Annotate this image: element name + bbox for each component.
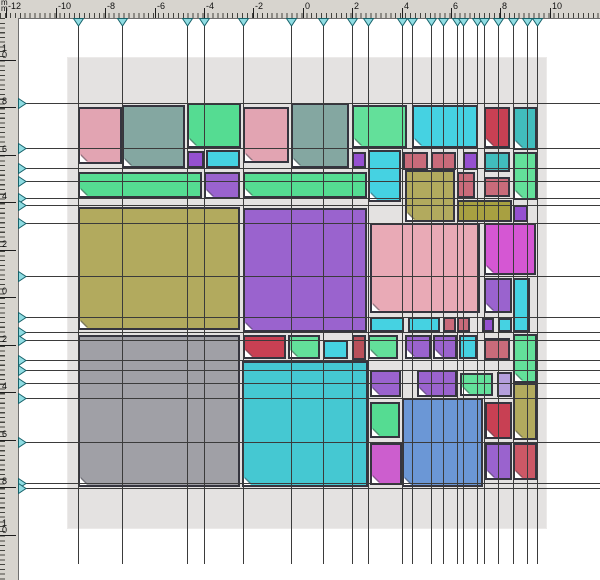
canvas-shape[interactable]: [187, 103, 241, 148]
ruler-tick: [0, 107, 16, 108]
canvas-shape[interactable]: [243, 208, 367, 332]
ruler-vertical[interactable]: 1086420246810: [0, 18, 19, 580]
guide-marker-icon[interactable]: [18, 437, 27, 448]
guide-marker-icon[interactable]: [18, 98, 27, 109]
canvas-shape[interactable]: [352, 152, 366, 168]
canvas-shape[interactable]: [498, 318, 512, 332]
canvas-shape[interactable]: [352, 105, 407, 148]
guide-marker-icon[interactable]: [18, 163, 27, 174]
ruler-tick-label: 4: [404, 1, 409, 11]
ruler-tick: [56, 8, 57, 18]
guide-line-horizontal[interactable]: [26, 168, 600, 169]
canvas-shape[interactable]: [484, 338, 510, 360]
canvas-shape[interactable]: [443, 317, 456, 332]
ruler-tick-label: -4: [206, 1, 214, 11]
guide-marker-icon[interactable]: [18, 218, 27, 229]
guide-marker-icon[interactable]: [199, 18, 210, 27]
canvas-shape[interactable]: [243, 335, 286, 359]
ruler-tick: [402, 8, 403, 18]
ruler-tick: [0, 155, 16, 156]
guide-line-horizontal[interactable]: [26, 332, 600, 333]
guide-marker-icon[interactable]: [18, 271, 27, 282]
canvas-shape[interactable]: [78, 207, 240, 330]
ruler-tick: [204, 8, 205, 18]
ruler-tick-label: -8: [107, 1, 115, 11]
canvas-shape[interactable]: [457, 172, 475, 198]
guide-marker-icon[interactable]: [117, 18, 128, 27]
canvas-shape[interactable]: [243, 172, 367, 198]
guide-line-horizontal[interactable]: [26, 103, 600, 104]
canvas-shape[interactable]: [368, 335, 398, 359]
ruler-tick: [0, 202, 16, 203]
guide-line-horizontal[interactable]: [26, 383, 600, 384]
ruler-tick: [0, 60, 16, 61]
ruler-tick: [0, 440, 16, 441]
guide-marker-icon[interactable]: [18, 365, 27, 376]
guide-marker-icon[interactable]: [438, 18, 449, 27]
ruler-unit-label: mm: [1, 0, 8, 12]
ruler-tick-label: 6: [453, 1, 458, 11]
ruler-tick: [0, 535, 16, 536]
guide-line-horizontal[interactable]: [26, 488, 600, 489]
guide-marker-icon[interactable]: [18, 143, 27, 154]
canvas-shape[interactable]: [513, 205, 528, 222]
guide-marker-icon[interactable]: [73, 18, 84, 27]
canvas-shape[interactable]: [484, 177, 510, 197]
ruler-tick-label: 8: [2, 98, 9, 105]
guide-line-horizontal[interactable]: [26, 276, 600, 277]
canvas-shape[interactable]: [243, 107, 289, 163]
guide-line-horizontal[interactable]: [26, 483, 600, 484]
ruler-tick-label: 2: [2, 241, 9, 248]
ruler-tick: [155, 8, 156, 18]
canvas-shape[interactable]: [206, 150, 240, 168]
canvas-shape[interactable]: [484, 152, 510, 172]
canvas-shape[interactable]: [433, 335, 457, 359]
guide-line-horizontal[interactable]: [26, 370, 600, 371]
guide-marker-icon[interactable]: [18, 393, 27, 404]
canvas-shape[interactable]: [484, 107, 510, 148]
ruler-tick-label: -12: [8, 1, 21, 11]
guide-marker-icon[interactable]: [407, 18, 418, 27]
ruler-tick: [0, 487, 16, 488]
ruler-tick-label: 2: [354, 1, 359, 11]
guide-line-horizontal[interactable]: [26, 398, 600, 399]
canvas-shape[interactable]: [370, 317, 404, 332]
guide-marker-icon[interactable]: [182, 18, 193, 27]
ruler-tick: [0, 250, 16, 251]
canvas-shape[interactable]: [497, 372, 512, 397]
canvas-shape[interactable]: [242, 361, 368, 487]
canvas-shape[interactable]: [459, 335, 477, 359]
ruler-tick-label: 10: [552, 1, 562, 11]
ruler-tick: [352, 8, 353, 18]
ruler-tick-label: 0: [2, 288, 9, 295]
guide-line-horizontal[interactable]: [26, 223, 600, 224]
drawing-canvas[interactable]: [0, 0, 600, 580]
guide-marker-icon[interactable]: [508, 18, 519, 27]
canvas-shape[interactable]: [513, 152, 537, 200]
canvas-shape[interactable]: [122, 105, 185, 168]
ruler-tick-label: 8: [2, 478, 9, 485]
guide-marker-icon[interactable]: [18, 176, 27, 187]
ruler-tick: [451, 8, 452, 18]
guide-marker-icon[interactable]: [363, 18, 374, 27]
guide-marker-icon[interactable]: [532, 18, 543, 27]
guide-marker-icon[interactable]: [18, 378, 27, 389]
canvas-shape[interactable]: [187, 151, 204, 168]
canvas-shape[interactable]: [288, 335, 320, 359]
canvas-shape[interactable]: [513, 334, 537, 383]
guide-line-horizontal[interactable]: [26, 205, 600, 206]
canvas-shape[interactable]: [513, 107, 537, 150]
canvas-shape[interactable]: [78, 172, 202, 198]
canvas-shape[interactable]: [291, 103, 349, 168]
guide-marker-icon[interactable]: [318, 18, 329, 27]
ruler-tick-label: 4: [2, 193, 9, 200]
guide-marker-icon[interactable]: [493, 18, 504, 27]
guide-marker-icon[interactable]: [18, 335, 27, 346]
guide-marker-icon[interactable]: [347, 18, 358, 27]
canvas-shape[interactable]: [370, 443, 402, 485]
canvas-shape[interactable]: [513, 443, 537, 480]
ruler-tick-label: -2: [255, 1, 263, 11]
guide-line-horizontal[interactable]: [26, 442, 600, 443]
guide-line-horizontal[interactable]: [26, 198, 600, 199]
guide-line-horizontal[interactable]: [26, 317, 600, 318]
ruler-tick: [0, 392, 16, 393]
ruler-tick-label: 8: [502, 1, 507, 11]
ruler-tick-label: 6: [2, 146, 9, 153]
ruler-horizontal[interactable]: -12-10-8-6-4-20246810: [0, 0, 600, 19]
ruler-tick: [550, 8, 551, 18]
ruler-tick-label: 0: [305, 1, 310, 11]
canvas-shape[interactable]: [513, 383, 537, 440]
canvas-shape[interactable]: [78, 335, 240, 487]
ruler-tick: [105, 8, 106, 18]
ruler-tick: [500, 8, 501, 18]
drawing-app-window: -12-10-8-6-4-20246810 1086420246810 mm: [0, 0, 600, 580]
canvas-shape[interactable]: [352, 335, 366, 360]
canvas-shape[interactable]: [412, 105, 478, 148]
canvas-shape[interactable]: [484, 223, 536, 275]
canvas-shape[interactable]: [204, 172, 240, 199]
canvas-shape[interactable]: [405, 335, 431, 359]
guide-line-horizontal[interactable]: [26, 148, 600, 149]
canvas-shape[interactable]: [368, 150, 401, 202]
guide-marker-icon[interactable]: [18, 483, 27, 494]
ruler-tick: [0, 345, 16, 346]
guide-line-horizontal[interactable]: [26, 340, 600, 341]
guide-marker-icon[interactable]: [18, 200, 27, 211]
ruler-tick: [253, 8, 254, 18]
ruler-tick: [303, 8, 304, 18]
guide-marker-icon[interactable]: [18, 312, 27, 323]
ruler-tick-label: 10: [2, 45, 9, 59]
canvas-shape[interactable]: [370, 402, 400, 438]
ruler-tick: [0, 297, 16, 298]
canvas-shape[interactable]: [78, 107, 122, 164]
guide-marker-icon[interactable]: [458, 18, 469, 27]
guide-line-horizontal[interactable]: [26, 360, 600, 361]
ruler-tick-label: 4: [2, 383, 9, 390]
canvas-shape[interactable]: [323, 340, 348, 359]
guide-marker-icon[interactable]: [286, 18, 297, 27]
ruler-tick-label: -6: [157, 1, 165, 11]
guide-marker-icon[interactable]: [426, 18, 437, 27]
ruler-tick-label: 6: [2, 431, 9, 438]
guide-line-horizontal[interactable]: [26, 181, 600, 182]
guide-marker-icon[interactable]: [238, 18, 249, 27]
ruler-tick-label: 2: [2, 336, 9, 343]
ruler-tick-label: -10: [58, 1, 71, 11]
ruler-tick-label: 10: [2, 520, 9, 534]
guide-marker-icon[interactable]: [479, 18, 490, 27]
